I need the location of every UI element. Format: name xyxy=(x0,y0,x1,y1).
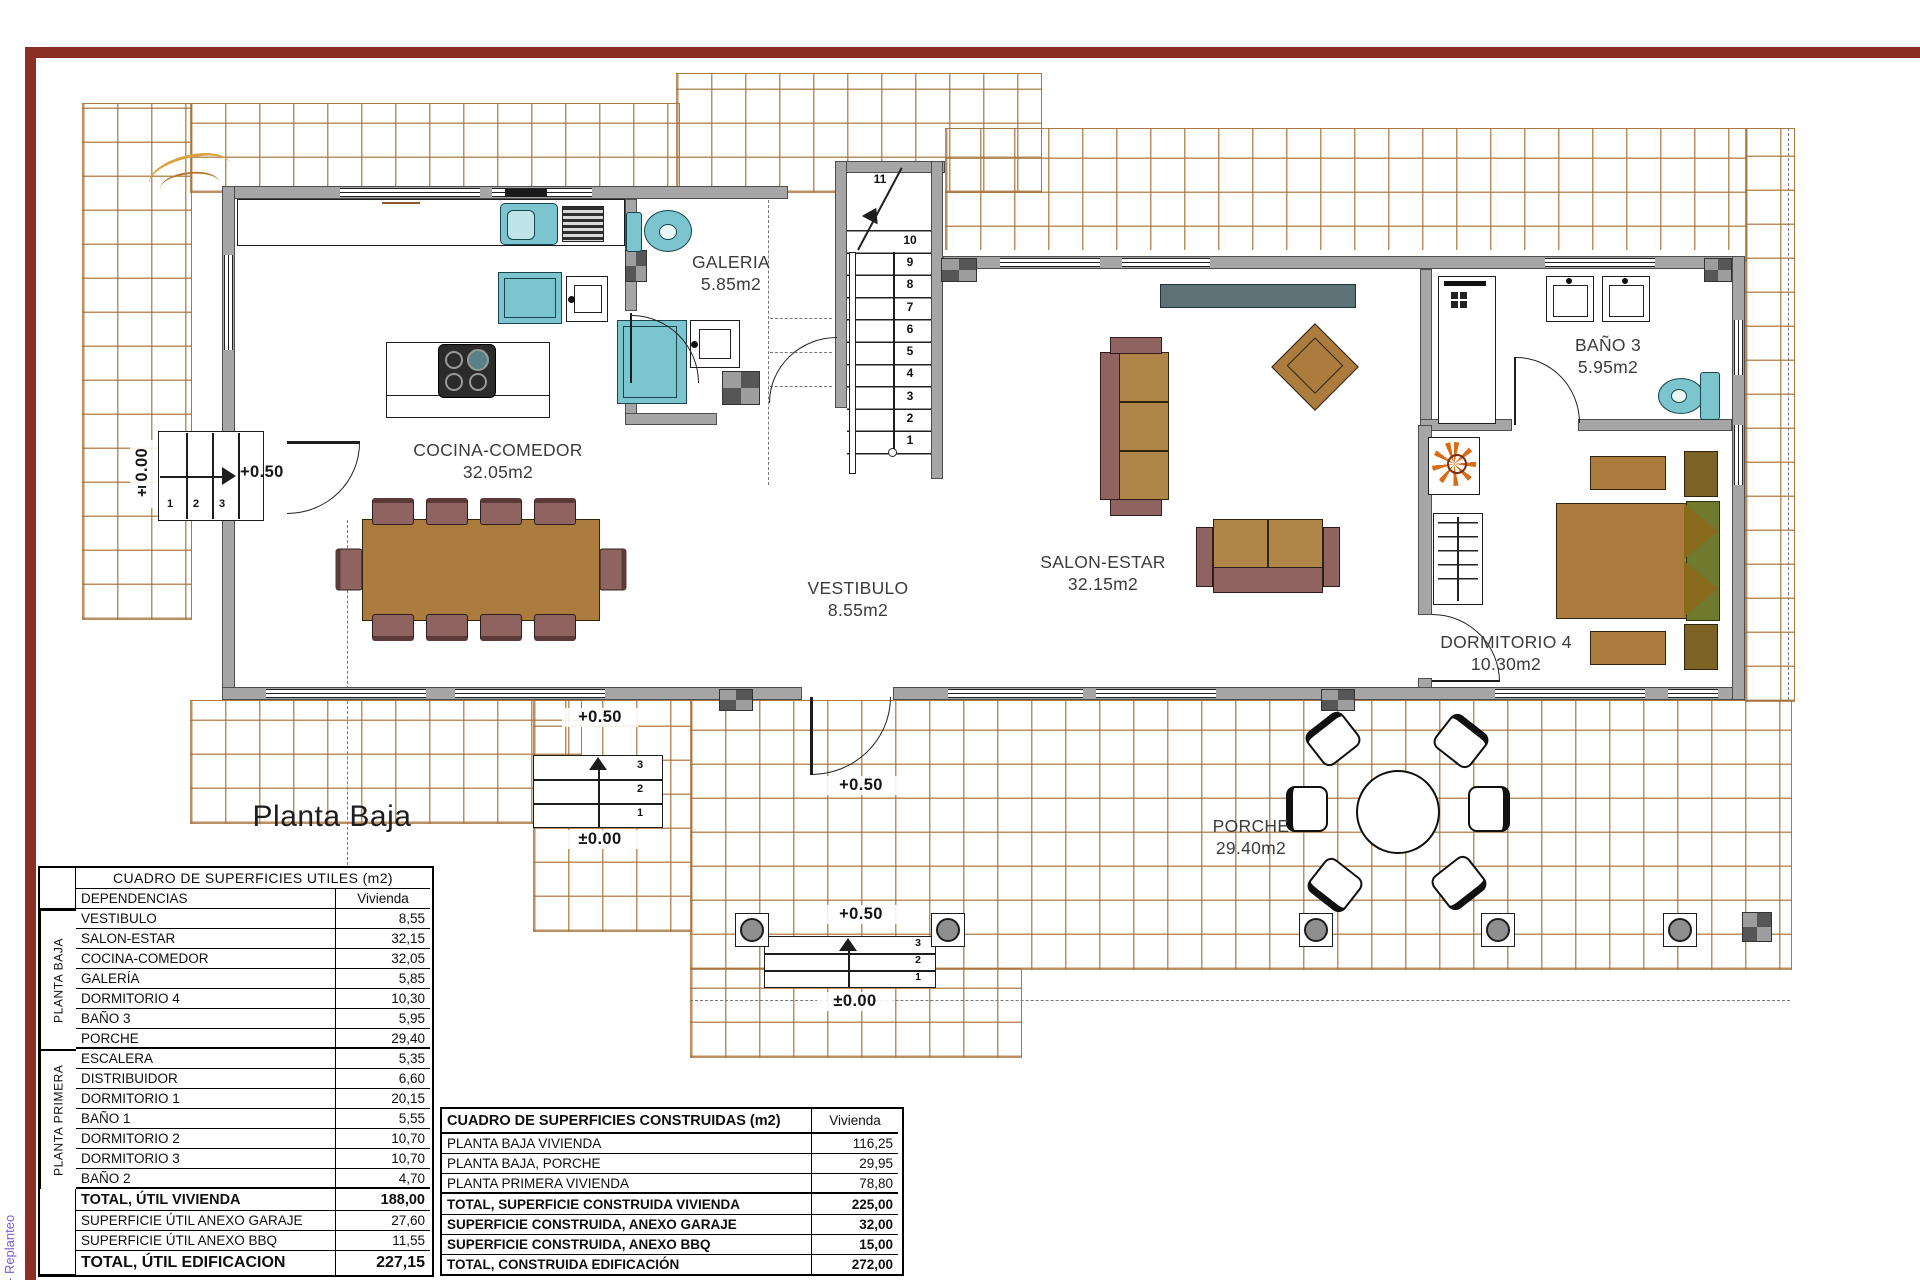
plant-pot-icon xyxy=(1447,454,1467,474)
stair-step-number: 7 xyxy=(896,300,924,314)
window xyxy=(1122,258,1210,267)
pier xyxy=(1321,689,1355,711)
sofa-seat xyxy=(1119,352,1169,500)
bedroom-bench xyxy=(1590,456,1666,490)
bed xyxy=(1556,503,1688,619)
wall-partition xyxy=(1418,678,1432,688)
column-header: Vivienda xyxy=(336,889,430,909)
table-total-row: SUPERFICIE CONSTRUIDA, ANEXO BBQ xyxy=(442,1235,812,1255)
prep-sink xyxy=(566,276,608,322)
porch-column-shaft xyxy=(740,918,764,942)
table-total-row: SUPERFICIE CONSTRUIDA, ANEXO GARAJE xyxy=(442,1215,812,1235)
room-area: 5.85m2 xyxy=(661,274,801,296)
wardrobe-rail xyxy=(1457,517,1459,601)
window xyxy=(1734,320,1743,375)
toilet-bowl-inner xyxy=(1671,389,1687,403)
toilet-bowl xyxy=(1658,378,1704,414)
table-total-row: TOTAL, ÚTIL VIVIENDA xyxy=(76,1189,336,1211)
window xyxy=(1096,689,1216,698)
porch-column-shaft xyxy=(1304,918,1328,942)
coffee-table-inner xyxy=(1287,337,1344,394)
sink-basin xyxy=(1609,285,1644,317)
window xyxy=(224,255,233,350)
window xyxy=(1668,689,1718,698)
column-header: Vivienda xyxy=(812,1109,898,1134)
window xyxy=(455,689,605,698)
sofa-armrest xyxy=(1323,527,1340,587)
table-value: 29,40 xyxy=(336,1029,430,1049)
stair-direction-arrow xyxy=(589,757,607,770)
window xyxy=(1734,425,1743,485)
stair-step-number: 1 xyxy=(162,498,178,510)
stair-step-number: 1 xyxy=(896,433,924,447)
dishwasher-door xyxy=(504,278,556,318)
table-total-value: 227,15 xyxy=(336,1251,430,1275)
stove-icon xyxy=(438,344,496,398)
room-label-bano3: BAÑO 3 5.95m2 xyxy=(1538,335,1678,379)
plan-title: Planta Baja xyxy=(212,800,452,834)
table-total-row: TOTAL, CONSTRUIDA EDIFICACIÓN xyxy=(442,1255,812,1274)
room-label-dormitorio4: DORMITORIO 4 10.30m2 xyxy=(1416,632,1596,676)
faucet-icon xyxy=(691,341,698,348)
galeria-sink xyxy=(690,320,740,368)
faucet-icon xyxy=(1566,278,1572,284)
table-value: 11,55 xyxy=(336,1231,430,1251)
dining-chair xyxy=(480,614,522,641)
counter-trim xyxy=(382,202,420,204)
sofa-back xyxy=(1100,352,1120,500)
pier xyxy=(625,250,647,282)
table-value: 5,55 xyxy=(336,1109,430,1129)
room-area: 32.15m2 xyxy=(1013,574,1193,596)
room-name: DORMITORIO 4 xyxy=(1416,632,1596,654)
table-row: PLANTA BAJA, PORCHE xyxy=(442,1154,812,1174)
staircase-handrail xyxy=(849,252,856,474)
stair-step-number: 5 xyxy=(896,344,924,358)
sheet-border-left xyxy=(25,47,36,1280)
stair-step-number: 3 xyxy=(896,389,924,403)
staircase-guide-line xyxy=(893,252,895,452)
table-superficies-utiles: CUADRO DE SUPERFICIES UTILES (m2) DEPEND… xyxy=(38,866,434,1277)
dining-chair xyxy=(534,498,576,525)
sofa-cushion-line xyxy=(1120,450,1168,452)
porch-column-shaft xyxy=(1486,918,1510,942)
table-value: 5,95 xyxy=(336,1009,430,1029)
dishwasher xyxy=(498,272,562,324)
shower-screen xyxy=(1444,281,1486,286)
table-value: 10,70 xyxy=(336,1149,430,1169)
dining-chair xyxy=(372,498,414,525)
wall-counter-block xyxy=(505,189,547,197)
tile-area xyxy=(945,128,1747,262)
stair-step-number: 8 xyxy=(896,277,924,291)
porch-column-shaft xyxy=(936,918,960,942)
table-superficies-construidas: CUADRO DE SUPERFICIES CONSTRUIDAS (m2) V… xyxy=(440,1107,904,1276)
bathroom-sink xyxy=(1546,276,1594,322)
table-row: SALON-ESTAR xyxy=(76,929,336,949)
stair-step-number: 3 xyxy=(630,759,650,771)
wall-partition xyxy=(1578,419,1732,431)
table-row: ESCALERA xyxy=(76,1049,336,1069)
table-row: VESTIBULO xyxy=(76,909,336,929)
wardrobe xyxy=(1433,513,1483,605)
staircase-start-circle xyxy=(888,448,897,457)
porch-corner-pier xyxy=(1742,912,1772,942)
window xyxy=(340,188,480,197)
table-row: DORMITORIO 2 xyxy=(76,1129,336,1149)
table-title: CUADRO DE SUPERFICIES UTILES (m2) xyxy=(76,868,430,889)
sink-basin xyxy=(507,210,535,240)
room-label-galeria: GALERIA 5.85m2 xyxy=(661,252,801,296)
sofa-armrest xyxy=(1110,499,1162,516)
table-value: 5,85 xyxy=(336,969,430,989)
porch-column xyxy=(931,913,965,947)
shower-column xyxy=(1438,276,1496,424)
table-total-row: TOTAL, SUPERFICIE CONSTRUIDA VIVIENDA xyxy=(442,1194,812,1215)
group-label-planta-primera: PLANTA PRIMERA xyxy=(40,1049,76,1189)
table-value: 20,15 xyxy=(336,1089,430,1109)
stair-step-number: 11 xyxy=(868,172,892,186)
nightstand xyxy=(1684,451,1718,497)
stair-step-number: 6 xyxy=(896,322,924,336)
dining-chair xyxy=(426,498,468,525)
sofa-seat xyxy=(1213,519,1323,569)
sofa-front xyxy=(1213,567,1323,593)
toilet-tank xyxy=(626,212,642,252)
table-value: 6,60 xyxy=(336,1069,430,1089)
sofa-cushion-line xyxy=(1120,401,1168,403)
sofa-armrest xyxy=(1196,527,1213,587)
table-value: 10,30 xyxy=(336,989,430,1009)
burner-icon xyxy=(445,373,463,391)
table-value: 32,15 xyxy=(336,929,430,949)
table-row: PLANTA BAJA VIVIENDA xyxy=(442,1134,812,1154)
table-value: 78,80 xyxy=(812,1174,898,1194)
cabinet-checkered xyxy=(722,371,760,405)
stair-step-number: 2 xyxy=(188,498,204,510)
room-name: PORCHE xyxy=(1171,816,1331,838)
room-area: 29.40m2 xyxy=(1171,838,1331,860)
porch-column xyxy=(1481,913,1515,947)
margin-note: - Replanteo xyxy=(2,1148,17,1280)
sofa-cushion-line xyxy=(1267,520,1269,568)
table-row: BAÑO 3 xyxy=(76,1009,336,1029)
window xyxy=(1495,689,1645,698)
shower-drain-icon xyxy=(1451,292,1467,308)
kitchen-sink xyxy=(500,203,558,245)
stair-step-number: 4 xyxy=(896,366,924,380)
sheet-border-top xyxy=(25,47,1920,58)
level-marker: +0.50 xyxy=(823,776,899,795)
dining-chair xyxy=(480,498,522,525)
porch-column xyxy=(1663,913,1697,947)
architectural-sheet: - Replanteo xyxy=(0,0,1920,1280)
window xyxy=(266,689,426,698)
plant-niche xyxy=(1428,437,1480,495)
prep-sink-basin xyxy=(574,285,602,313)
wall-stair-tower xyxy=(931,161,943,479)
faucet-icon xyxy=(568,296,575,303)
table-row: BAÑO 2 xyxy=(76,1169,336,1189)
tv-sideboard xyxy=(1160,284,1356,308)
stair-step-number: 3 xyxy=(214,498,230,510)
stair-step-number: 2 xyxy=(908,954,928,966)
stair-axis xyxy=(598,768,600,827)
bed-pillow xyxy=(1684,503,1718,559)
room-area: 5.95m2 xyxy=(1538,357,1678,379)
level-marker: +0.50 xyxy=(823,905,899,924)
table-total-row: TOTAL, ÚTIL EDIFICACION xyxy=(76,1251,336,1275)
dining-chair xyxy=(600,549,627,591)
group-label-planta-baja: PLANTA BAJA xyxy=(40,909,76,1049)
toilet-tank xyxy=(1700,372,1720,420)
toilet-bowl xyxy=(644,210,692,252)
window xyxy=(948,689,1083,698)
table-value: 8,55 xyxy=(336,909,430,929)
stair-step-number: 1 xyxy=(630,807,650,819)
porch-column xyxy=(1299,913,1333,947)
faucet-icon xyxy=(1622,278,1628,284)
room-area: 8.55m2 xyxy=(778,600,938,622)
porch-column-shaft xyxy=(1668,918,1692,942)
pier xyxy=(719,689,753,711)
room-area: 32.05m2 xyxy=(398,462,598,484)
table-total-value: 188,00 xyxy=(336,1189,430,1211)
wall-partition xyxy=(1420,269,1432,431)
column-header: DEPENDENCIAS xyxy=(76,889,336,909)
room-name: VESTIBULO xyxy=(778,578,938,600)
table-row: COCINA-COMEDOR xyxy=(76,949,336,969)
room-label-cocina: COCINA-COMEDOR 32.05m2 xyxy=(398,440,598,484)
burner-icon xyxy=(469,373,487,391)
table-row: DORMITORIO 1 xyxy=(76,1089,336,1109)
bedroom-bench xyxy=(1590,631,1666,665)
bathroom-sink xyxy=(1602,276,1650,322)
table-row: PLANTA PRIMERA VIVIENDA xyxy=(442,1174,812,1194)
level-marker: +0.50 xyxy=(562,708,638,727)
porch-chair xyxy=(1468,786,1510,832)
dining-chair xyxy=(426,614,468,641)
porch-column xyxy=(735,913,769,947)
pier xyxy=(1704,258,1732,282)
table-value: 4,70 xyxy=(336,1169,430,1189)
tile-area xyxy=(190,103,680,193)
table-corner-cell xyxy=(40,1189,76,1275)
table-row: SUPERFICIE ÚTIL ANEXO BBQ xyxy=(76,1231,336,1251)
table-value: 5,35 xyxy=(336,1049,430,1069)
table-value: 32,05 xyxy=(336,949,430,969)
room-label-porche: PORCHE 29.40m2 xyxy=(1171,816,1331,860)
window xyxy=(1545,258,1655,267)
table-title: CUADRO DE SUPERFICIES CONSTRUIDAS (m2) xyxy=(442,1109,812,1134)
overhang-dashed-line xyxy=(770,318,832,319)
axis-dashed-line xyxy=(768,200,769,485)
table-row: DORMITORIO 4 xyxy=(76,989,336,1009)
sink-basin xyxy=(1553,285,1588,317)
dining-chair xyxy=(372,614,414,641)
wall-partition xyxy=(625,413,717,425)
dining-chair xyxy=(336,549,363,591)
table-corner-cell xyxy=(40,868,76,909)
bed-pillow xyxy=(1684,561,1718,617)
table-row: SUPERFICIE ÚTIL ANEXO GARAJE xyxy=(76,1211,336,1231)
table-value: 27,60 xyxy=(336,1211,430,1231)
stair-step-number: 2 xyxy=(630,783,650,795)
table-total-value: 225,00 xyxy=(812,1194,898,1215)
table-total-value: 32,00 xyxy=(812,1215,898,1235)
room-area: 10.30m2 xyxy=(1416,654,1596,676)
room-label-vestibulo: VESTIBULO 8.55m2 xyxy=(778,578,938,622)
stair-direction-arrow xyxy=(839,938,857,951)
entry-stair-axis xyxy=(160,476,222,478)
table-row: GALERÍA xyxy=(76,969,336,989)
level-marker: ±0.00 xyxy=(562,830,638,849)
sofa-armrest xyxy=(1110,337,1162,354)
stair-step-number: 1 xyxy=(908,971,928,983)
toilet-bowl-inner xyxy=(659,224,677,240)
table-row: PORCHE xyxy=(76,1029,336,1049)
nightstand xyxy=(1684,624,1718,670)
table-value: 116,25 xyxy=(812,1134,898,1154)
galeria-sink-basin xyxy=(699,329,731,359)
room-label-salon: SALON-ESTAR 32.15m2 xyxy=(1013,552,1193,596)
room-name: COCINA-COMEDOR xyxy=(398,440,598,462)
porch-table xyxy=(1356,770,1440,854)
burner-icon xyxy=(445,351,463,369)
level-marker: ±0.00 xyxy=(817,992,893,1011)
sink-drainer xyxy=(562,206,604,242)
room-name: SALON-ESTAR xyxy=(1013,552,1193,574)
stair-step-number: 2 xyxy=(896,411,924,425)
stair-step-number: 3 xyxy=(908,937,928,949)
level-marker: ±0.00 xyxy=(130,440,158,508)
window xyxy=(1000,258,1100,267)
pier xyxy=(941,258,977,282)
table-row: DORMITORIO 3 xyxy=(76,1149,336,1169)
axis-dashed-line xyxy=(1788,128,1789,700)
room-name: GALERIA xyxy=(661,252,801,274)
table-value: 29,95 xyxy=(812,1154,898,1174)
table-row: BAÑO 1 xyxy=(76,1109,336,1129)
dining-chair xyxy=(534,614,576,641)
entry-direction-arrow xyxy=(222,467,236,485)
table-value: 10,70 xyxy=(336,1129,430,1149)
room-name: BAÑO 3 xyxy=(1538,335,1678,357)
burner-icon xyxy=(467,349,489,371)
stair-step-number: 9 xyxy=(896,255,924,269)
table-row: DISTRIBUIDOR xyxy=(76,1069,336,1089)
stair-step-number: 10 xyxy=(896,233,924,247)
table-total-value: 15,00 xyxy=(812,1235,898,1255)
dining-table xyxy=(362,519,600,621)
table-total-value: 272,00 xyxy=(812,1255,898,1274)
